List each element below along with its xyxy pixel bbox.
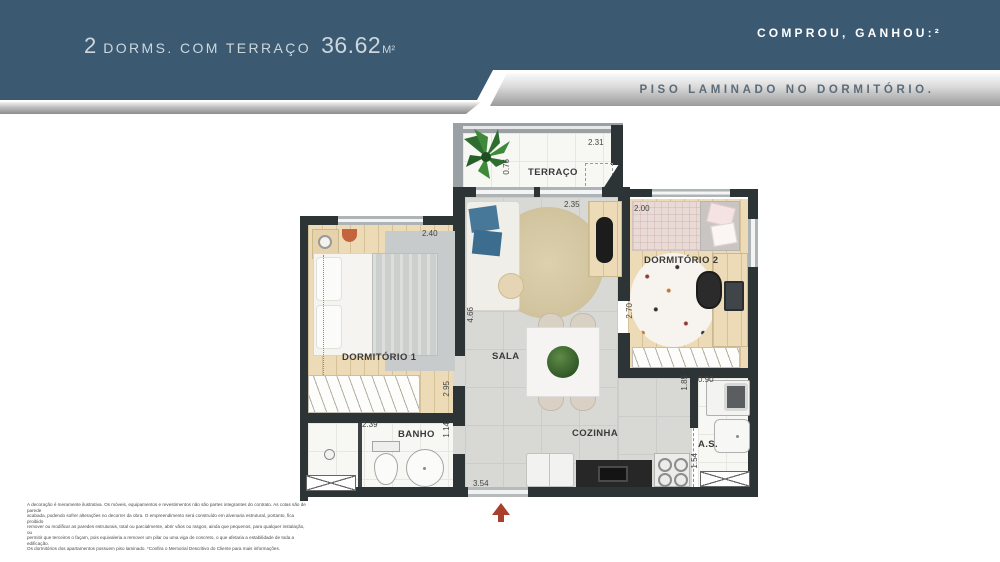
plan-title: 2 DORMS. COM TERRAÇO 36.62 M² (84, 32, 395, 59)
living-window-2 (540, 187, 602, 197)
service-dim-depth-lower: 1.54 (690, 453, 699, 469)
burner-1 (658, 458, 672, 472)
bedroom2-window (652, 189, 730, 197)
washing-machine-door (724, 383, 748, 411)
bedroom1-window (338, 216, 423, 225)
disclaimer-line: A decoração é meramente ilustrativa. Os … (27, 502, 309, 513)
floorplan: TERRAÇO 2.31 0.76 DORMITÓRIO 1 2.40 2.95 (300, 123, 758, 501)
terrace-dim-width: 2.31 (588, 138, 604, 147)
bathroom-dim-width: 2.39 (362, 420, 378, 429)
bedroom1-dim-width: 2.40 (422, 229, 438, 238)
entry-door (468, 487, 528, 497)
bathroom-door-opening (453, 426, 465, 454)
wall-left (300, 216, 308, 501)
plan-area-value: 36.62 (321, 32, 381, 59)
toilet-tank (372, 441, 400, 452)
wall-living-bedroom2-lower (618, 333, 630, 373)
sofa-pillow-2 (472, 230, 502, 257)
service-shaft (700, 471, 750, 487)
bedroom1-pillow-1 (316, 257, 342, 301)
promo-detail: PISO LAMINADO NO DORMITÓRIO. (639, 84, 934, 96)
kitchen-sink (598, 466, 628, 482)
kitchen-dim-width: 3.54 (473, 479, 489, 488)
terrace-dim-depth: 0.76 (502, 159, 511, 175)
bathroom-sink-drain (423, 467, 426, 470)
bedroom1-wardrobe (308, 375, 420, 413)
service-dim-depth-upper: 1.85 (680, 375, 689, 391)
bedroom1-blanket (372, 253, 438, 356)
desk-chair (696, 271, 722, 309)
wall-bottom (300, 487, 758, 497)
promo-heading: COMPROU, GANHOU:² (757, 26, 942, 40)
side-table (498, 273, 524, 299)
plan-title-text: DORMS. COM TERRAÇO (103, 40, 311, 56)
bedroom2-side-window (748, 219, 758, 267)
bedroom2-pillow-2 (710, 222, 737, 247)
bedroom2-dim-width: 2.00 (634, 204, 650, 213)
tv (596, 217, 613, 263)
disclaimer-line: acabada, podendo sofrer alterações no de… (27, 513, 309, 524)
terrace-label: TERRAÇO (528, 167, 578, 178)
fridge (526, 453, 574, 487)
bathroom-shaft (306, 475, 356, 491)
plan-title-number: 2 (84, 33, 96, 59)
burner-4 (674, 473, 688, 487)
sofa-pillow-1 (468, 205, 499, 233)
bedroom2-wardrobe (632, 347, 740, 368)
living-window-1 (476, 187, 534, 197)
disclaimer-line: remover ou modificar as paredes estrutur… (27, 524, 309, 535)
bedroom2-label: DORMITÓRIO 2 (644, 255, 718, 266)
entry-arrow-stem (498, 515, 504, 522)
kitchen-label: COZINHA (572, 428, 618, 439)
entry-arrow-icon (492, 503, 510, 515)
disclaimer-text: A decoração é meramente ilustrativa. Os … (27, 502, 309, 552)
disclaimer-line: permitir que terceiros o façam, pois equ… (27, 535, 309, 546)
bedroom1-dim-depth: 2.95 (442, 381, 451, 397)
bedroom2-dim-depth: 2.70 (625, 303, 634, 319)
bedroom1-label: DORMITÓRIO 1 (342, 352, 416, 363)
service-label: A.S. (698, 439, 718, 450)
bathroom-dim-depth: 1.14 (442, 422, 451, 438)
burner-3 (658, 473, 672, 487)
promo-band: PISO LAMINADO NO DORMITÓRIO. (490, 73, 1000, 106)
header-silver-stripe-left (0, 102, 487, 114)
bedroom1-lamp (318, 235, 332, 249)
service-dim-width: 0.90 (698, 375, 714, 384)
wall-kitchen-service (690, 378, 698, 428)
living-label: SALA (492, 351, 519, 362)
fridge-door-line (549, 454, 550, 486)
living-dim-width: 2.35 (564, 200, 580, 209)
laptop (724, 281, 744, 311)
plan-area-unit: M² (382, 44, 395, 56)
disclaimer-line: Os dormitórios dos apartamentos possuem … (27, 546, 309, 552)
bedroom1-pillow-2 (316, 305, 342, 349)
laundry-sink-drain (736, 435, 739, 438)
shower-drain-icon (324, 449, 335, 460)
bathroom-label: BANHO (398, 429, 435, 440)
laundry-sink (714, 419, 750, 453)
shower-partition (358, 423, 362, 487)
terrace-wall-right (611, 125, 623, 165)
bedroom1-projection-line (323, 255, 324, 377)
table-plant-icon (547, 346, 579, 378)
burner-2 (674, 458, 688, 472)
living-dim-depth: 4.66 (466, 307, 475, 323)
